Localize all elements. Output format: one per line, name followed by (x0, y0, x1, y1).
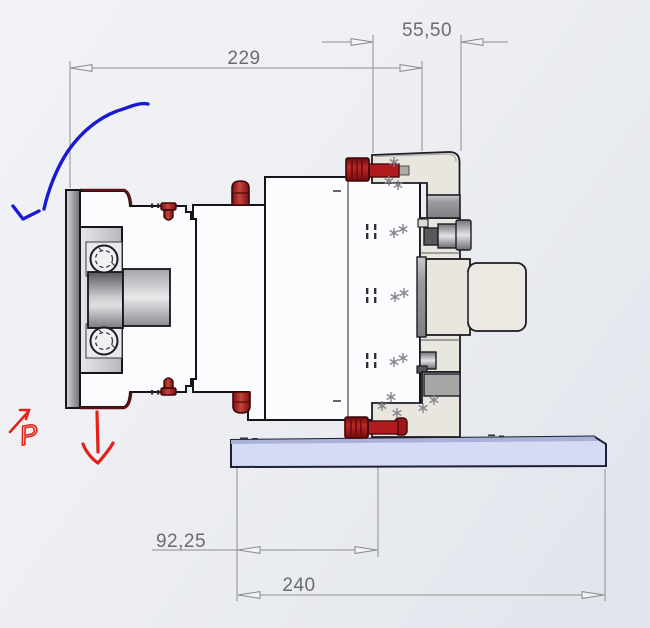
dimension-overall-length[interactable]: 229 (227, 48, 260, 69)
dimension-base-front-offset[interactable]: 92,25 (156, 531, 206, 552)
drawing-svg: 229 55,50 92,25 240 P (0, 0, 650, 628)
jaw-guide-bar (417, 257, 426, 337)
dimension-top-offset[interactable]: 55,50 (402, 20, 452, 41)
base-plate (231, 435, 606, 468)
cad-viewport[interactable]: 229 55,50 92,25 240 P (0, 0, 650, 628)
p-label: P (17, 419, 40, 452)
red-plug-mid-bottom (233, 392, 250, 413)
socket-screw-bottom (91, 328, 118, 355)
red-down-arrow (83, 412, 113, 463)
locating-stud-top (418, 219, 471, 250)
motor-flange-plate (66, 190, 80, 408)
socket-screw-top (91, 246, 118, 273)
dimension-base-plate-length[interactable]: 240 (282, 575, 315, 596)
mid-housing-block (192, 205, 265, 420)
output-shaft (88, 269, 170, 328)
chuck-jaw (426, 259, 526, 335)
red-p-annotation: P (10, 410, 40, 451)
red-plug-mid-top (232, 181, 249, 205)
